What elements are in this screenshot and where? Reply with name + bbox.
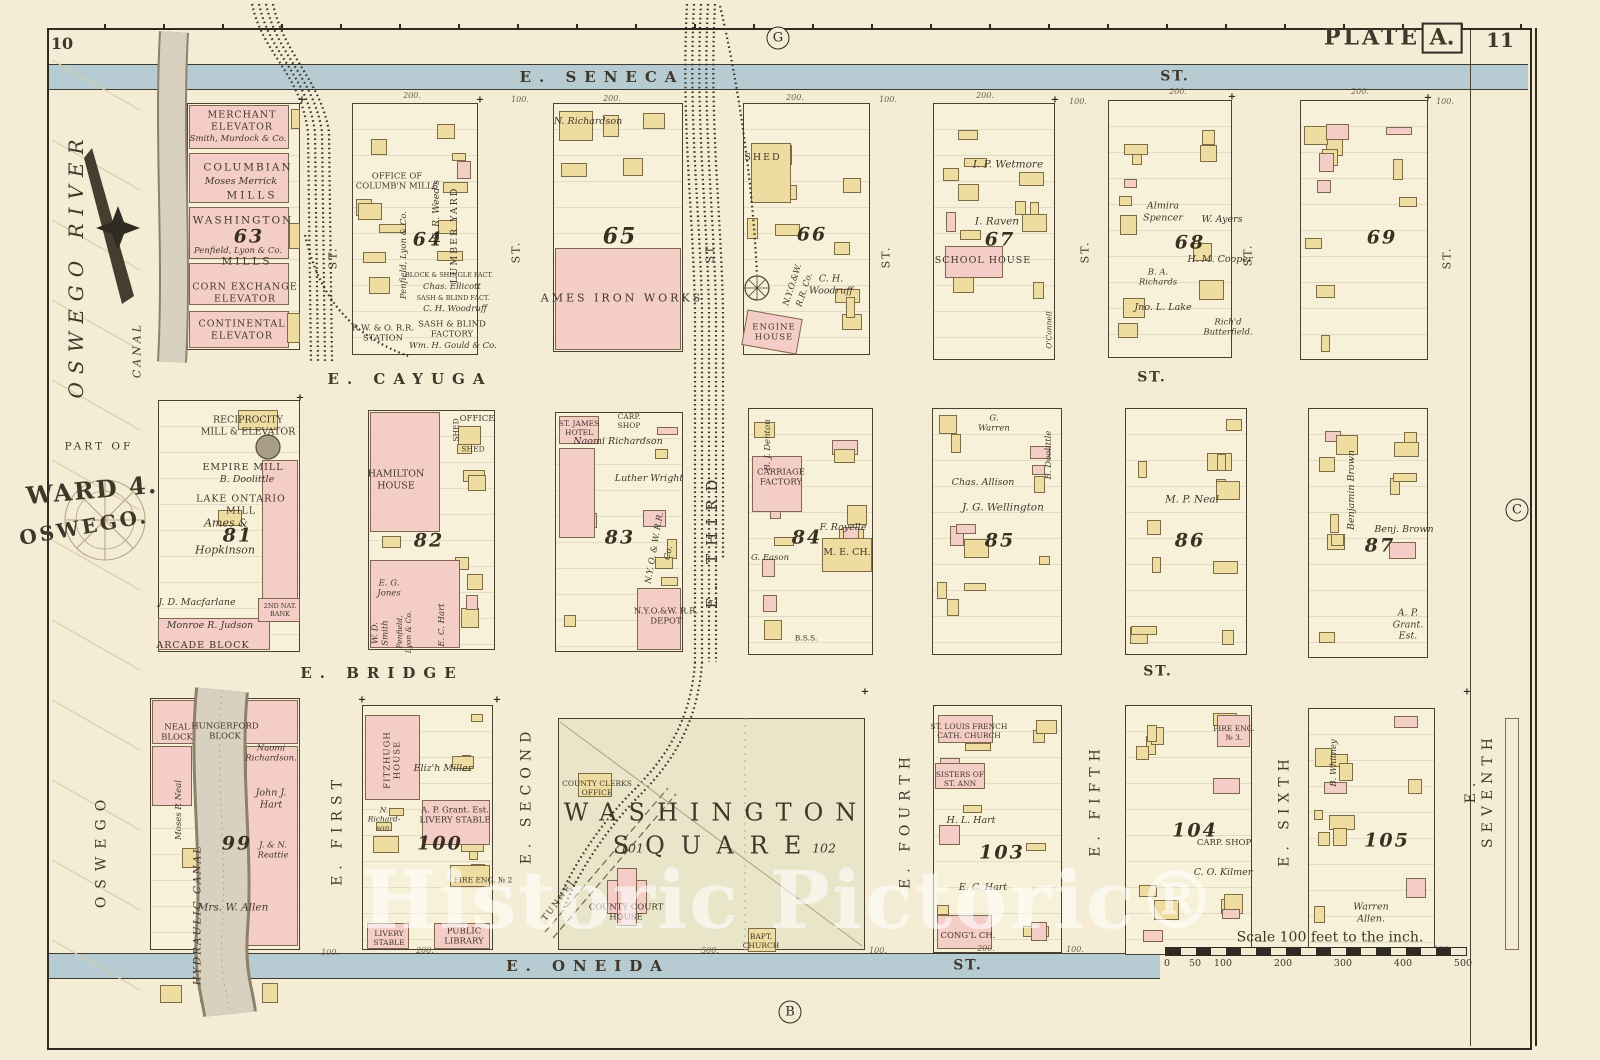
building	[1321, 335, 1330, 352]
label-columbian: COLUMBIAN	[203, 162, 292, 175]
right-street-edge-line	[1470, 30, 1471, 1046]
street-st-5: ST.	[1078, 241, 1091, 264]
watermark: Historic Pictoric®	[361, 853, 1218, 947]
building	[461, 608, 479, 628]
label-luther-wright: Luther Wright	[615, 473, 683, 485]
label-engine-house: ENGINE HOUSE	[752, 323, 795, 344]
label-naomi-richardson-99: Naomi Richardson.	[245, 744, 297, 765]
plate-word: PLATE	[1324, 25, 1420, 52]
dim-label: 200.	[1169, 87, 1187, 97]
building	[1118, 323, 1139, 338]
building	[458, 426, 480, 445]
canal-label: CANAL	[130, 322, 143, 378]
label-hl-hart: H. L. Hart	[947, 815, 996, 827]
street-first: E. FIRST	[329, 774, 346, 886]
label-me-church: M. E. CH.	[823, 547, 870, 559]
building	[1033, 282, 1044, 299]
block-69	[1300, 100, 1428, 360]
outer-border-line	[1535, 28, 1537, 1046]
building	[939, 825, 960, 845]
dim-label: 100.	[1069, 97, 1087, 107]
building	[623, 158, 643, 176]
page-number-left: 10	[51, 34, 73, 54]
building	[1120, 215, 1137, 234]
label-washington: WASHINGTON	[564, 798, 869, 827]
label-n-richardson-100: N. Richard- son.	[368, 805, 400, 832]
dim-label: 500.	[701, 946, 719, 956]
street-seneca: E. SENECA	[520, 68, 685, 86]
margin-strip	[1505, 718, 1519, 950]
label-john-hart: John J. Hart	[256, 787, 287, 810]
building	[1393, 159, 1403, 180]
label-moses-neal: Moses P. Neal	[174, 780, 184, 840]
city-label: OSWEGO.	[17, 504, 150, 551]
label-doolittle-85: B. Doolittle	[1044, 431, 1054, 480]
building	[358, 203, 382, 220]
building	[943, 168, 959, 181]
label-lake-ontario: LAKE ONTARIO MILL	[196, 493, 286, 516]
building	[1199, 280, 1225, 300]
building	[1136, 746, 1149, 759]
building	[457, 161, 471, 179]
building	[937, 582, 948, 599]
street-sixth: E. SIXTH	[1276, 753, 1293, 867]
oswego-bottom-label: OSWEGO	[93, 792, 110, 908]
building	[1147, 725, 1157, 743]
building	[1330, 514, 1340, 533]
building	[152, 746, 192, 806]
corner-mark: +	[1051, 95, 1059, 106]
label-rayelle: F. Rayelle	[820, 522, 867, 534]
building	[1386, 127, 1412, 135]
corner-mark: +	[296, 393, 304, 404]
building	[1314, 906, 1325, 923]
building	[1319, 632, 1335, 643]
building	[1393, 473, 1418, 481]
building	[747, 218, 758, 239]
building	[1226, 419, 1242, 432]
label-butterfield: Rich'd Butterfield.	[1203, 318, 1252, 339]
building	[471, 714, 482, 723]
building	[947, 599, 959, 617]
building	[643, 113, 665, 129]
building	[1119, 196, 1132, 205]
label-allison: Chas. Allison	[952, 477, 1015, 489]
building	[1213, 778, 1239, 794]
dim-label: 200.	[403, 91, 421, 101]
building	[1222, 630, 1233, 645]
scale-bar	[1165, 947, 1467, 956]
label-block-shingle: BLOCK & SHINGLE FACT.	[405, 272, 493, 280]
building	[1316, 285, 1335, 298]
label-sash-blind-fact: SASH & BLIND FACT.	[417, 295, 490, 303]
corner-mark: +	[1424, 93, 1432, 104]
building	[287, 313, 300, 343]
block-65-number: 65	[603, 224, 638, 251]
corner-mark: +	[358, 695, 366, 706]
block-83-number: 83	[605, 526, 635, 549]
label-benjamin-brown: Benjamin Brown	[1346, 450, 1358, 530]
label-eason: G. Eason	[751, 553, 789, 563]
label-fire-eng-3: FIRE ENG. № 3.	[1213, 724, 1255, 742]
label-sisters: SISTERS OF ST. ANN	[936, 770, 984, 788]
building	[958, 130, 978, 141]
street-st-1: ST.	[326, 247, 339, 270]
building	[963, 805, 982, 813]
street-seneca-st: ST.	[1160, 68, 1190, 85]
building	[437, 124, 456, 140]
building	[834, 449, 855, 463]
scale-tick: 400	[1394, 958, 1412, 970]
label-n-richardson: N. Richardson	[554, 116, 622, 128]
street-oneida-st: ST.	[953, 957, 983, 974]
street-cayuga-st: ST.	[1137, 369, 1167, 386]
building	[763, 595, 777, 612]
label-merchant-elevator: MERCHANT ELEVATOR	[208, 109, 277, 132]
building	[939, 415, 957, 434]
label-ellicott: Chas. Ellicott	[423, 282, 481, 292]
block-66-number: 66	[797, 223, 827, 246]
dim-label: 100.	[321, 948, 339, 958]
label-gould: Wm. H. Gould & Co.	[409, 341, 497, 351]
label-lake-jno: Jno. L. Lake	[1134, 302, 1191, 314]
building	[1317, 180, 1331, 193]
building	[1216, 481, 1240, 500]
building	[559, 448, 595, 538]
label-moses-merrick: Moses Merrick	[205, 176, 277, 188]
label-penfield-82: Penfield, Lyon & Co.	[395, 611, 413, 653]
label-smith-murdock: Smith, Murdock & Co.	[190, 134, 287, 144]
building	[371, 139, 387, 155]
label-bss: B.S.S.	[795, 633, 817, 642]
building	[262, 983, 278, 1003]
building	[467, 574, 483, 590]
building	[291, 109, 300, 129]
building	[1339, 763, 1353, 781]
building	[1304, 126, 1328, 145]
corner-mark: +	[298, 95, 306, 106]
street-fifth: E. FIFTH	[1087, 743, 1104, 857]
page-number-right: 11	[1486, 28, 1514, 52]
label-fitzhugh-house: FITZHUGH HOUSE	[383, 731, 404, 789]
block-84-number: 84	[792, 526, 822, 549]
street-bridge: E. BRIDGE	[300, 664, 463, 682]
label-wd-smith: W. D. Smith	[371, 620, 392, 646]
block-85-number: 85	[985, 529, 1015, 552]
dim-label: 200.	[416, 946, 434, 956]
label-ames-iron-works: AMES IRON WORKS	[541, 291, 703, 304]
label-reciprocity: RECIPROCITY MILL & ELEVATOR	[201, 414, 296, 437]
dim-label: 100.	[869, 946, 887, 956]
seneca-street-band	[47, 64, 1528, 90]
dim-label: 200.	[1351, 87, 1369, 97]
label-cooper: H. M. Cooper	[1187, 254, 1252, 266]
scale-caption: Scale 100 feet to the inch.	[1237, 929, 1424, 946]
block-68-number: 68	[1175, 231, 1205, 254]
label-st-louis-church: ST. LOUIS FRENCH CATH. CHURCH	[931, 722, 1008, 740]
building	[1217, 454, 1226, 471]
label-raven: I. Raven	[975, 216, 1019, 229]
label-oconnell: O'Connell	[1044, 311, 1053, 348]
street-oneida: E. ONEIDA	[506, 957, 670, 975]
atlas-map-plate: 10 PLATE A. 11 G B C OSWEGO RIVER CANAL …	[0, 0, 1600, 1060]
label-whitney: B. Whitney	[1329, 739, 1339, 786]
building	[846, 297, 855, 318]
street-st-7: ST.	[1440, 247, 1453, 270]
building	[1222, 909, 1240, 919]
building	[363, 252, 385, 264]
label-richards: B. A. Richards	[1139, 268, 1177, 289]
dim-label: 200.	[976, 91, 994, 101]
building	[956, 524, 976, 534]
scale-tick: 300	[1334, 958, 1352, 970]
scale-tick: 500	[1454, 958, 1472, 970]
corner-mark: +	[493, 695, 501, 706]
building	[1305, 238, 1323, 249]
label-carp-shop-104: CARP. SHOP	[1197, 838, 1251, 848]
building	[160, 985, 182, 1003]
label-grant-livery: A. P. Grant. Est. LIVERY STABLE	[419, 806, 490, 827]
building	[1026, 843, 1046, 851]
dim-label: 200.	[786, 93, 804, 103]
building	[1124, 144, 1149, 155]
building	[200, 988, 218, 1002]
building	[951, 434, 961, 453]
corner-mark: +	[1463, 687, 1471, 698]
building	[1394, 442, 1419, 458]
building	[452, 153, 465, 161]
label-corn-exchange: CORN EXCHANGE ELEVATOR	[192, 281, 297, 304]
label-weed: E. R. Weed's	[431, 180, 443, 240]
label-mrs-allen: Mrs. W. Allen	[198, 902, 269, 915]
building	[1319, 153, 1333, 172]
label-lumber-yard: LUMBER YARD	[449, 187, 461, 284]
building	[1036, 720, 1057, 734]
label-ayers: W. Ayers	[1201, 214, 1242, 226]
building	[1138, 461, 1148, 478]
building	[764, 620, 782, 640]
label-reattie: J. & N. Reattie	[257, 841, 288, 862]
building	[655, 449, 668, 459]
building	[369, 277, 390, 294]
building	[1202, 130, 1215, 145]
building	[466, 595, 478, 610]
street-st-3: ST.	[703, 241, 716, 264]
label-shed-82b: SHED	[461, 444, 484, 453]
building	[960, 230, 981, 239]
label-mills: MILLS	[226, 190, 277, 203]
building	[661, 577, 678, 586]
label-st-james-hotel: ST. JAMES HOTEL	[559, 419, 600, 437]
building	[657, 427, 678, 435]
index-marker-g: G	[767, 27, 790, 50]
building	[1200, 145, 1218, 162]
building	[1124, 179, 1137, 188]
building	[564, 615, 576, 627]
building	[1152, 557, 1162, 572]
building	[1394, 716, 1418, 728]
street-st-4: ST.	[879, 246, 892, 269]
label-2nd-nat-bank: 2ND NAT. BANK	[264, 603, 297, 619]
label-shed-66: SHED	[744, 152, 781, 164]
block-86-number: 86	[1175, 529, 1205, 552]
corner-mark: +	[861, 687, 869, 698]
building	[1326, 124, 1349, 140]
street-st-2: ST.	[509, 241, 522, 264]
label-carriage-factory: CARRIAGE FACTORY	[757, 468, 805, 489]
block-82-number: 82	[414, 529, 444, 552]
building	[373, 836, 399, 853]
dim-label: 200.	[603, 94, 621, 104]
label-hamilton-house: HAMILTON HOUSE	[368, 468, 425, 491]
label-wellington: J. G. Wellington	[962, 502, 1044, 515]
building	[1333, 828, 1347, 846]
building	[965, 743, 992, 751]
label-empire-mill: EMPIRE MILL	[202, 462, 283, 474]
label-denton: B. J. Denton	[763, 419, 773, 470]
label-naomi-richardson-83: Naomi Richardson	[573, 436, 662, 448]
building	[1147, 520, 1161, 535]
label-neal-86: M. P. Neal	[1165, 494, 1219, 507]
block-69-number: 69	[1367, 226, 1397, 249]
label-doolittle-81: B. Doolittle	[220, 474, 274, 486]
label-hopkinson: Hopkinson	[195, 543, 255, 556]
building	[774, 537, 794, 546]
label-jones: E. G. Jones	[377, 579, 400, 600]
index-marker-c: C	[1506, 499, 1529, 522]
plate-letter: A.	[1422, 23, 1463, 54]
label-office-columbian: OFFICE OF COLUMB'N MILLS	[356, 172, 438, 193]
building	[964, 583, 986, 591]
building	[1022, 214, 1047, 233]
block-105-number: 105	[1364, 829, 1410, 852]
dim-label: 100.	[1436, 97, 1454, 107]
label-warren: G. Warren	[978, 414, 1010, 435]
street-bridge-st: ST.	[1143, 663, 1173, 680]
label-mills-2: MILLS	[221, 256, 272, 269]
dim-label: 100.	[511, 95, 529, 105]
scale-tick: 50	[1189, 958, 1201, 970]
street-cayuga: E. CAYUGA	[328, 370, 493, 388]
building	[946, 212, 956, 232]
block-87-number: 87	[1365, 534, 1395, 557]
scale-tick: 100	[1214, 958, 1232, 970]
label-judson: Monroe R. Judson	[167, 620, 253, 632]
index-marker-b: B	[779, 1001, 802, 1024]
building	[1131, 626, 1158, 635]
label-spencer: Almira Spencer	[1143, 200, 1183, 223]
building	[958, 184, 978, 202]
block-67-number: 67	[985, 228, 1015, 251]
label-penfield-lyon-64: Penfield, Lyon & Co.	[399, 211, 409, 299]
building	[1406, 878, 1426, 898]
building	[1318, 832, 1330, 846]
label-depot: N.Y.O.&W. R.R. DEPOT	[634, 607, 698, 628]
building	[1019, 172, 1045, 187]
building	[561, 163, 587, 177]
hydraulic-canal-label: HYDRAULIC CANAL	[192, 845, 205, 986]
compass-needle	[96, 206, 140, 250]
label-miller: Eliz'h Miller	[414, 763, 473, 775]
street-second: E. SECOND	[518, 726, 535, 865]
building	[382, 536, 400, 548]
building	[468, 475, 486, 491]
label-arcade-block: ARCADE BLOCK	[156, 640, 249, 652]
building	[1319, 457, 1335, 472]
label-hungerford-block: HUNGERFORD BLOCK	[191, 722, 259, 743]
label-macfarlane: J. D. Macfarlane	[158, 597, 235, 609]
label-woodruff-66: C. H. Woodruff	[809, 273, 853, 296]
building	[1408, 779, 1422, 794]
label-continental: CONTINENTAL ELEVATOR	[198, 318, 285, 341]
dim-label: 100.	[879, 95, 897, 105]
oswego-river-label: OSWEGO RIVER	[64, 131, 88, 398]
label-neal-block: NEAL BLOCK	[161, 723, 193, 744]
pier-shape	[84, 148, 134, 304]
building	[1399, 197, 1417, 208]
scale-tick: 0	[1164, 958, 1170, 970]
label-county-clerks: COUNTY CLERKS OFFICE	[562, 779, 632, 797]
label-sash-blind-factory: SASH & BLIND FACTORY	[418, 320, 486, 341]
label-shed-82a: SHED	[451, 418, 460, 441]
label-office-82: OFFICE	[460, 414, 495, 424]
corner-mark: +	[476, 95, 484, 106]
label-woodruff-64: C. H. Woodruff	[423, 304, 487, 314]
corner-mark: +	[1228, 92, 1236, 103]
scale-tick: 200	[1274, 958, 1292, 970]
building	[1314, 810, 1323, 820]
building	[843, 178, 861, 193]
block-99-number: 99	[222, 832, 252, 855]
label-ec-hart-82: E. C. Hart	[437, 603, 447, 646]
label-rwo-station: R.W. & O. R.R. STATION	[352, 324, 414, 345]
label-wetmore: I. P. Wetmore	[973, 159, 1043, 172]
label-carp-shop-83: CARP. SHOP	[618, 412, 641, 430]
building	[1331, 534, 1344, 546]
street-seventh: E. SEVENTH	[1463, 730, 1497, 850]
building	[1213, 561, 1237, 574]
label-school-house: SCHOOL HOUSE	[935, 255, 1032, 267]
building	[1039, 556, 1049, 565]
building	[834, 242, 851, 255]
label-warren-allen: Warren Allen.	[1353, 901, 1388, 924]
street-third: E. THIRD	[703, 472, 721, 609]
label-grant-est-87: A. P. Grant. Est.	[1393, 608, 1424, 643]
frame-tick-marks	[47, 24, 1528, 29]
part-of-label: PART OF	[65, 441, 134, 454]
